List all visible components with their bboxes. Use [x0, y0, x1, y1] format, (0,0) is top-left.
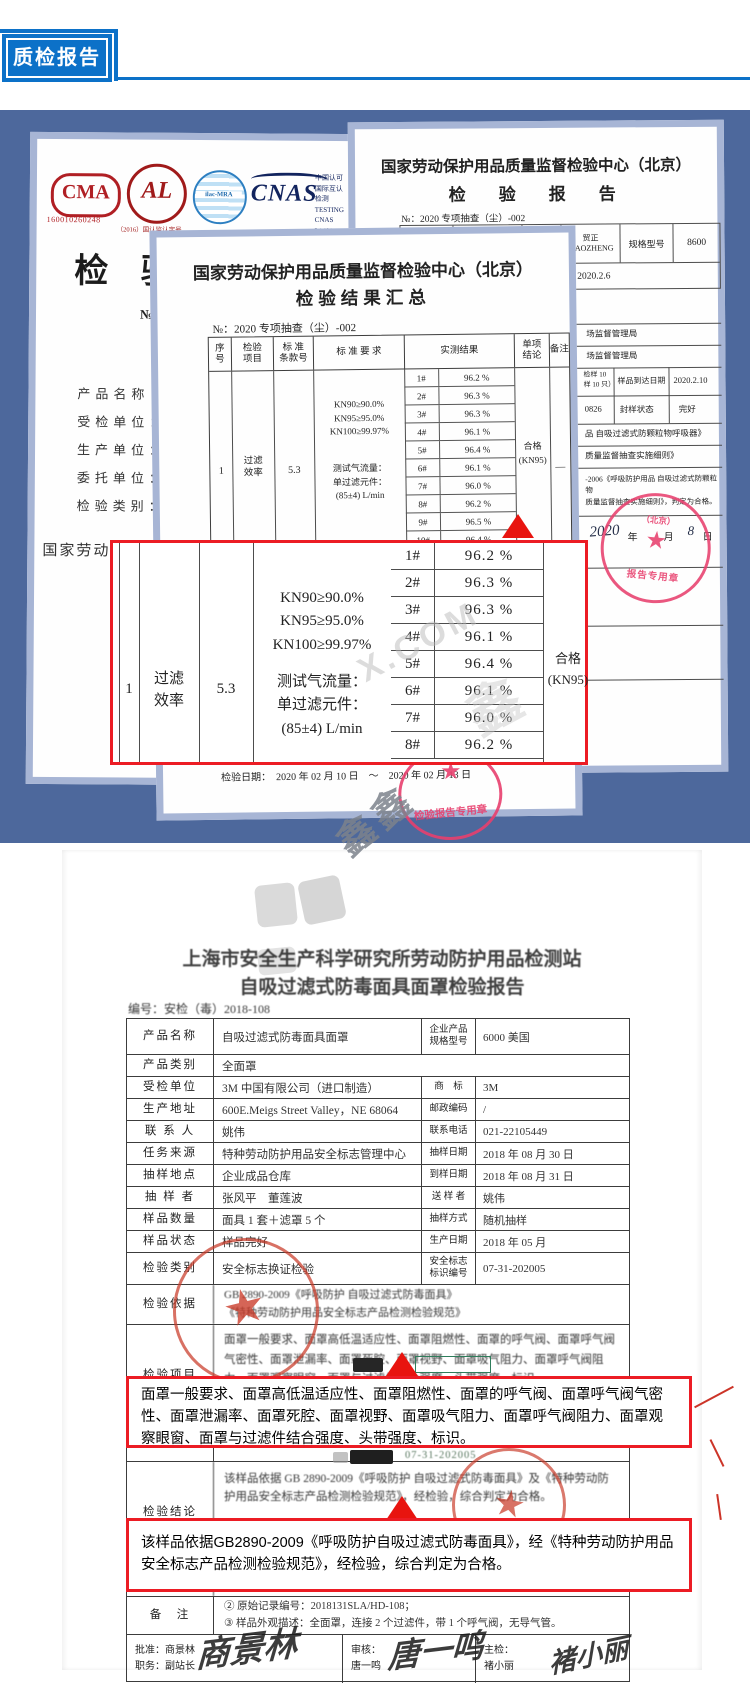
- sample-value: 96.1 %: [435, 678, 543, 704]
- review-name: 唐一鸣: [351, 1659, 381, 1675]
- right-doc-subtitle: 检 验 报 告: [355, 179, 717, 207]
- sample-value: 96.0 %: [440, 476, 515, 494]
- requirement-flow: 测试气流量： 单过滤元件： (85±4) L/min: [314, 462, 405, 504]
- row-label: 样品数量: [127, 1209, 213, 1230]
- sample-id: 5#: [391, 651, 435, 677]
- callout-pointer-triangle: [386, 1496, 418, 1520]
- sample-id: 3#: [391, 597, 435, 623]
- grid-line: [199, 543, 200, 762]
- grid-line: [668, 367, 669, 423]
- result-row: 6#96.1 %: [405, 458, 515, 477]
- sample-id: 7#: [405, 477, 440, 494]
- sample-value: 96.2 %: [435, 732, 543, 758]
- result-row: 4#96.1 %: [405, 422, 515, 441]
- sample-value: 96.0 %: [435, 705, 543, 731]
- row-value: /: [475, 1099, 629, 1120]
- dark-marker-block: [350, 1450, 393, 1464]
- sample-value: 96.3 %: [440, 404, 515, 422]
- sample-id: 1#: [391, 543, 435, 569]
- stamp-text-bottom: 报告专用章: [601, 563, 706, 587]
- sample-id: 7#: [391, 705, 435, 731]
- cnas-logo-icon: CNAS: [251, 180, 318, 207]
- grid-line: [119, 543, 120, 762]
- cert-line: 国际互认: [315, 183, 351, 194]
- seq-value: 1: [210, 466, 232, 477]
- right-doc-title: 国家劳动保护用品质量监督检验中心（北京）: [355, 153, 717, 178]
- table-row: 产品名称 自吸过滤式防毒面具面罩 企业产品 规格型号 6000 美国: [127, 1019, 629, 1055]
- row-label: 产品名称: [127, 1019, 213, 1054]
- table-row: 受检单位3M 中国有限公司（进口制造）商 标3M: [127, 1077, 629, 1099]
- star-icon: ★: [644, 525, 668, 556]
- conclusion-callout-box: 该样品依据GB2890-2009《呼吸防护自吸过滤式防毒面具》，经《特种劳动防护…: [126, 1518, 692, 1592]
- row-value: 3M 中国有限公司（进口制造）: [213, 1077, 421, 1098]
- left-doc-footer: 国家劳动: [42, 539, 110, 560]
- main-label: 主检：: [484, 1643, 514, 1659]
- header-rule: [118, 77, 750, 80]
- row-value: 姚伟: [475, 1187, 629, 1208]
- result-row: 1#96.2 %: [404, 368, 514, 387]
- cert-line: 中国认可: [315, 173, 351, 184]
- ilac-mra-logo-icon: ilac-MRA: [193, 170, 247, 224]
- result-row: 1#96.2 %: [391, 543, 543, 570]
- cert-line: TESTING: [315, 204, 351, 215]
- col-item: 检验 项目: [231, 337, 273, 371]
- sample-value: 96.3 %: [435, 597, 543, 623]
- page-title: 质检报告: [8, 40, 106, 76]
- dark-marker-block: [353, 1358, 383, 1372]
- summary-subtitle: 检验结果汇总: [157, 283, 569, 313]
- seal-no: 0826: [585, 404, 602, 414]
- main-name: 褚小丽: [484, 1659, 514, 1675]
- note-value: —: [550, 461, 570, 472]
- row-value: 6000 美国: [475, 1019, 629, 1054]
- result-row: 8#96.2 %: [406, 494, 516, 513]
- sample-id: 8#: [406, 495, 441, 512]
- sample-id: 4#: [405, 423, 440, 440]
- zoom-clause: 5.3: [199, 681, 253, 698]
- cma-logo-icon: CMA: [51, 173, 121, 217]
- row-label: 邮政编码: [421, 1099, 475, 1120]
- results-zoom-overlay: 1#96.2 % 2#96.3 % 3#96.3 % 4#96.1 % 5#96…: [110, 540, 588, 765]
- grid-line: [543, 543, 544, 762]
- mark-code: 07-31-202005: [405, 1450, 477, 1461]
- star-icon: ★: [217, 1275, 272, 1340]
- zoom-requirement-flow: 测试气流量： 单过滤元件： (85±4) L/min: [253, 671, 391, 741]
- grid-line: [139, 543, 140, 762]
- row-value: 600E.Meigs Street Valley，NE 68064: [213, 1099, 421, 1120]
- row-label: 生产地址: [127, 1099, 213, 1120]
- result-row: 3#96.3 %: [405, 404, 515, 423]
- row-label: 样品状态: [127, 1231, 213, 1252]
- row-label: 产品类别: [127, 1055, 213, 1076]
- row-label: 受检单位: [127, 1077, 213, 1098]
- row-label: 送 样 者: [421, 1187, 475, 1208]
- fragment-text: 质量监督抽查实施细则》: [585, 449, 679, 462]
- sample-id: 6#: [405, 459, 440, 476]
- sample-value: 96.4 %: [440, 440, 515, 458]
- shanghai-title: 上海市安全生产科学研究所劳动防护用品检测站: [62, 944, 702, 971]
- result-row: 5#96.4 %: [405, 440, 515, 459]
- result-row: 4#96.1 %: [391, 624, 543, 651]
- row-label: 抽样地点: [127, 1165, 213, 1186]
- ilac-label: ilac-MRA: [196, 191, 242, 198]
- sample-id: 3#: [405, 405, 440, 422]
- cnas-cert-lines: 中国认可 国际互认 检测 TESTING CNAS L1499: [315, 173, 351, 236]
- table-row: 任务来源特种劳动防护用品安全标志管理中心抽样日期2018 年 08 月 30 日: [127, 1143, 629, 1165]
- row-value: 特种劳动防护用品安全标志管理中心: [213, 1143, 421, 1164]
- fragment-text: 品 自吸过滤式防颗粒物呼吸器》: [585, 427, 706, 440]
- red-pen-mark: [710, 1439, 725, 1467]
- stamp-text: 检验报告专用章: [401, 800, 500, 825]
- sample-value: 96.1 %: [435, 624, 543, 650]
- sample-id: 2#: [404, 387, 439, 404]
- right-doc-no-line: №：2020 专项抽查（尘）-002: [401, 210, 525, 225]
- fragment-text: 场监督管理局: [586, 327, 637, 339]
- col-verdict: 单项 结论: [514, 334, 549, 367]
- cert-line: 检测: [315, 194, 351, 205]
- row-label: 抽样日期: [421, 1143, 475, 1164]
- row-label: 联系电话: [421, 1121, 475, 1142]
- row-label: 联 系 人: [127, 1121, 213, 1142]
- col-result: 实测结果: [404, 334, 514, 368]
- row-value: 面具 1 套＋滤罩 5 个: [213, 1209, 421, 1230]
- sample-date-label: 样品到达日期: [618, 375, 666, 386]
- result-row: 6#96.1 %: [391, 678, 543, 705]
- items-callout-box: 面罩一般要求、面罩高低温适应性、面罩阻燃性、面罩的呼气阀、面罩呼气阀气密性、面罩…: [126, 1376, 692, 1448]
- zoom-requirement-limits: KN90≥90.0% KN95≥95.0% KN100≥99.97%: [253, 587, 391, 657]
- row-value: 2018 年 08 月 31 日: [475, 1165, 629, 1186]
- table-row: 样品数量面具 1 套＋滤罩 5 个抽样方式随机抽样: [127, 1209, 629, 1231]
- cell-value: 8600: [672, 224, 719, 262]
- result-row: 9#96.5 %: [406, 512, 516, 531]
- row-value: 07-31-202005: [475, 1253, 629, 1284]
- row-label: 抽 样 者: [127, 1187, 213, 1208]
- row-label: 企业产品 规格型号: [421, 1019, 475, 1054]
- review-label: 审核：: [351, 1643, 381, 1659]
- row-value: 2018 年 08 月 30 日: [475, 1143, 629, 1164]
- item-value: 过滤 效率: [232, 455, 274, 480]
- row-value: 随机抽样: [475, 1209, 629, 1230]
- report-code-line: 编号：安检（毒）2018-108: [128, 1000, 270, 1017]
- grid-line: [613, 367, 614, 423]
- row-value: 企业成品仓库: [213, 1165, 421, 1186]
- quality-report-page: 质检报告 CMA 160010260248 AL （2016）国认监认字号 il…: [0, 0, 750, 1687]
- zoom-seq: 1: [119, 681, 139, 698]
- sample-id: 2#: [391, 570, 435, 596]
- row-value: 张风平 董莲波: [213, 1187, 421, 1208]
- col-seq: 序 号: [209, 338, 231, 371]
- table-row: 联 系 人姚伟联系电话021-22105449: [127, 1121, 629, 1143]
- cal-logo-icon: AL: [127, 164, 187, 224]
- sample-id: 4#: [391, 624, 435, 650]
- section-title-box: 质检报告: [6, 38, 108, 78]
- sample-value: 96.2 %: [439, 368, 514, 386]
- sample-id: 8#: [391, 732, 435, 758]
- zoom-pointer-triangle: [502, 514, 534, 538]
- sample-value: 96.2 %: [441, 494, 516, 512]
- result-row: 7#96.0 %: [391, 705, 543, 732]
- col-note: 备注: [549, 334, 569, 367]
- callout-pointer-triangle: [386, 1352, 418, 1376]
- result-row: 3#96.3 %: [391, 597, 543, 624]
- col-requirement: 标 准 要 求: [313, 336, 404, 370]
- row-label: 到样日期: [421, 1165, 475, 1186]
- row-value: 2018 年 05 月: [475, 1231, 629, 1252]
- sample-value: 96.1 %: [440, 458, 515, 476]
- duty-label: 职务：副站长: [135, 1659, 195, 1675]
- row-label: 安全标志 标识编号: [421, 1253, 475, 1284]
- sample-id: 5#: [405, 441, 440, 458]
- cma-number: 160010260248: [47, 215, 101, 224]
- row-label: 商 标: [421, 1077, 475, 1098]
- row-label: 生产日期: [421, 1231, 475, 1252]
- zoom-item: 过滤 效率: [139, 669, 199, 713]
- summary-title: 国家劳动保护用品质量监督检验中心（北京）: [157, 255, 569, 285]
- gray-logo-square: [297, 874, 347, 926]
- sample-cell: 检样 10 样 10 只）: [583, 370, 612, 390]
- seal-state-value: 完好: [679, 403, 696, 415]
- row-value: 姚伟: [213, 1121, 421, 1142]
- result-row: 8#96.2 %: [391, 732, 543, 759]
- table-header-row: 序 号 检验 项目 标 准 条款号 标 准 要 求 实测结果 单项 结论 备注: [209, 334, 569, 372]
- sample-id: 1#: [404, 369, 439, 386]
- sample-value: 96.2 %: [435, 543, 543, 569]
- row-value: 全面罩: [213, 1055, 629, 1076]
- result-row: 7#96.0 %: [405, 476, 515, 495]
- summary-no-line: №：2020 专项抽查（尘）-002: [213, 319, 357, 337]
- green-code-box: [415, 1356, 491, 1373]
- red-pen-mark: [716, 1494, 722, 1520]
- result-row: 5#96.4 %: [391, 651, 543, 678]
- result-rows: 1#96.2 % 2#96.3 % 3#96.3 % 4#96.1 % 5#96…: [404, 368, 516, 549]
- row-label: 抽样方式: [421, 1209, 475, 1230]
- clause-value: 5.3: [274, 465, 314, 476]
- title-frame-right: [114, 29, 118, 81]
- verdict-value: 合格 (KN95): [515, 440, 550, 467]
- seal-state-label: 封样状态: [620, 403, 654, 415]
- fragment-text: 场监督管理局: [586, 349, 637, 361]
- sample-value: 96.3 %: [439, 386, 514, 404]
- row-value: 3M: [475, 1077, 629, 1098]
- sample-value: 96.1 %: [440, 422, 515, 440]
- zoom-result-rows: 1#96.2 % 2#96.3 % 3#96.3 % 4#96.1 % 5#96…: [391, 543, 543, 759]
- result-row: 2#96.3 %: [404, 386, 514, 405]
- table-row: 样品状态样品完好生产日期2018 年 05 月: [127, 1231, 629, 1253]
- sample-id: 9#: [406, 513, 441, 530]
- gray-logo-square: [254, 882, 298, 928]
- sample-date-value: 2020.2.10: [674, 375, 708, 385]
- zoom-verdict: 合格 (KN95): [545, 649, 591, 691]
- sample-value: 96.4 %: [435, 651, 543, 677]
- requirement-limits: KN90≥90.0% KN95≥95.0% KN100≥99.97%: [313, 398, 404, 440]
- scan-artifact-block: [333, 1452, 348, 1463]
- row-value: 自吸过滤式防毒面具面罩: [213, 1019, 421, 1054]
- table-row: 生产地址600E.Meigs Street Valley，NE 68064邮政编…: [127, 1099, 629, 1121]
- row-value: 021-22105449: [475, 1121, 629, 1142]
- cell-label: 规格型号: [619, 224, 672, 262]
- shanghai-subtitle: 自吸过滤式防毒面具面罩检验报告: [62, 972, 702, 999]
- table-row: 抽样地点企业成品仓库到样日期2018 年 08 月 31 日: [127, 1165, 629, 1187]
- col-clause: 标 准 条款号: [273, 337, 313, 370]
- sample-value: 96.3 %: [435, 570, 543, 596]
- table-row: 产品类别 全面罩: [127, 1055, 629, 1077]
- table-row: 抽 样 者张风平 董莲波送 样 者姚伟: [127, 1187, 629, 1209]
- title-frame-top: [0, 29, 118, 33]
- approve-label: 批准：商景林: [135, 1643, 195, 1659]
- result-row: 2#96.3 %: [391, 570, 543, 597]
- row-label: 任务来源: [127, 1143, 213, 1164]
- sample-id: 6#: [391, 678, 435, 704]
